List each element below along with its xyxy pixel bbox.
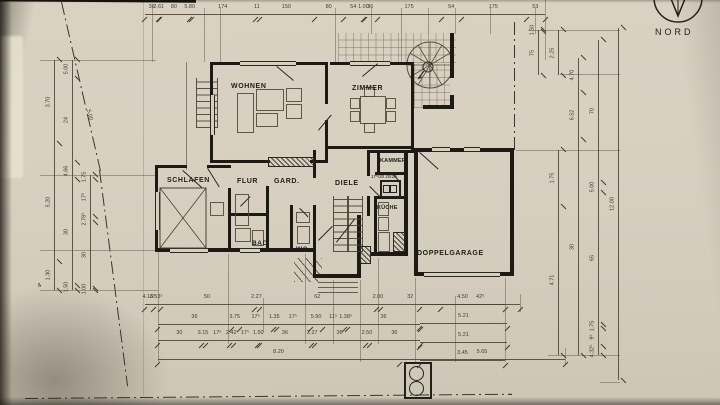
dim-label: 1.30 (46, 270, 52, 281)
dim-segment: 150 (259, 5, 314, 14)
room-label-gard: GARD. (274, 178, 300, 185)
dim-segment: 17⁵ (239, 315, 273, 324)
dim-chain-right-top-a: 1.5075 (528, 30, 539, 75)
dim-label: 9⁵ (590, 334, 596, 339)
room-label-garage: DOPPELGARAGE (417, 250, 484, 257)
door-swing (276, 66, 293, 81)
counter (378, 232, 390, 252)
dim-label: 36 (282, 331, 288, 337)
dim-segment: 65 (588, 192, 598, 324)
dim-label: 150 (282, 5, 291, 11)
box-cell (390, 185, 397, 193)
wardrobe (268, 157, 314, 167)
dim-label: 3.45 (457, 351, 468, 357)
chair (350, 111, 360, 122)
wall (325, 62, 328, 104)
dim-label: 53 (532, 5, 538, 11)
dim-label: 11⁵ (329, 315, 337, 321)
extension-line (220, 8, 221, 62)
dim-chain-left-outer: 3.705.201.30 (44, 60, 55, 290)
dim-segment: 17⁵ (276, 315, 310, 324)
garage-door (424, 272, 500, 277)
room-label-wc: WC (296, 246, 308, 253)
terrace-wall (450, 33, 454, 78)
dim-label: 4.71 (550, 275, 556, 286)
dim-segment: 30 (568, 139, 578, 355)
dim-segment: 70 (588, 40, 598, 182)
dim-segment: 80 (314, 5, 343, 14)
room-label-bad: BAD (252, 240, 268, 247)
table (256, 89, 284, 111)
bathtub (235, 194, 249, 226)
chair (386, 98, 396, 109)
dim-chain-bottom-3: 303.1517⁵2.4217⁵1.50362.27362.5036 (158, 331, 420, 341)
room-label-zimmer: ZIMMER (352, 85, 383, 92)
photo-shadow-bottom (0, 397, 720, 405)
window (240, 61, 296, 66)
dim-segment: 30 (62, 179, 72, 285)
dim-segment: 5.21 (420, 314, 507, 323)
dim-label: 80 (326, 5, 332, 11)
dim-label: 32 (407, 295, 413, 301)
dim-label-diagonal: 5.00 (85, 109, 93, 121)
dim-chain-top: 362.61805.801741115080541.00361755417553 (145, 5, 545, 15)
dim-label: 6.52 (570, 110, 576, 121)
armchair (286, 88, 302, 102)
dim-segment: 36 (364, 5, 377, 14)
sideboard (256, 113, 278, 127)
dim-segment: 53 (526, 5, 546, 14)
dim-label: 50 (204, 295, 210, 301)
dim-label: 2.25 (550, 47, 556, 58)
compass-label: NORD (655, 27, 694, 37)
shaft-circle (409, 381, 424, 396)
dim-segment: 75 (528, 31, 538, 75)
dim-segment: 12.00 (608, 28, 618, 380)
radiator (360, 246, 371, 264)
dim-segment: 2.25 (548, 30, 558, 75)
dim-chain-right-c: 705.00651.759⁵4.32⁵ (588, 40, 599, 355)
extension-line (600, 382, 620, 383)
dim-label: 80 (171, 5, 177, 11)
terrace-wall (450, 95, 454, 109)
dim-label: 17⁵ (241, 331, 249, 337)
dim-label: 70 (590, 108, 596, 114)
railing-line (186, 62, 187, 170)
wall (313, 205, 316, 277)
dim-segment: 30 (158, 331, 201, 340)
dim-label: 54 (350, 5, 356, 11)
room-label-schlafen: SCHLAFEN (167, 177, 210, 184)
wall (370, 252, 408, 256)
door-swing (318, 226, 333, 241)
dim-segment: 5.00 (62, 60, 72, 78)
dim-segment: 4.71 (548, 206, 558, 355)
sofa (237, 93, 254, 133)
table (360, 96, 386, 124)
dim-segment: 3.75 (231, 315, 239, 324)
dim-label: 36 (381, 315, 387, 321)
dim-chain-right-b: 4.706.5230 (568, 58, 579, 355)
room-label-kueche: KÜCHE (377, 205, 398, 211)
dim-segment: 1.75 (548, 150, 558, 206)
dim-label: 54 (448, 5, 454, 11)
dim-label: 30 (64, 229, 70, 235)
dim-label: 5.20 (46, 197, 52, 208)
sink (235, 228, 251, 242)
boundary-line-east (514, 22, 515, 152)
dim-segment: 24 (62, 78, 72, 163)
dim-label: 5.90 (311, 315, 322, 321)
dim-label: 17⁵ (213, 331, 221, 337)
room-label-diele: DIELE (335, 180, 359, 187)
dim-segment: 30 (80, 222, 90, 288)
interior-stair (333, 196, 348, 252)
wall (325, 120, 328, 163)
dim-label: 24 (64, 117, 70, 123)
dim-label: 30 (570, 244, 576, 250)
window (240, 248, 260, 253)
dim-label: 5.21 (458, 333, 469, 339)
wall (207, 165, 231, 168)
wall (328, 146, 414, 149)
dim-segment: 5.00 (588, 182, 598, 192)
wall (266, 186, 269, 216)
armchair (286, 104, 302, 119)
dim-segment: 50 (160, 295, 255, 304)
extension-line (40, 250, 158, 251)
dim-label: 17⁵ (82, 193, 88, 201)
window (464, 147, 480, 152)
dim-label: 5.00 (64, 63, 70, 74)
wall (155, 165, 187, 168)
extension-line (40, 60, 156, 61)
dim-chain-garage-3: 5.21 (420, 333, 507, 343)
window (350, 61, 390, 66)
dim-label: 5.21 (458, 314, 469, 320)
dim-label: 174 (218, 5, 227, 11)
dim-segment: 54 (441, 5, 461, 14)
dim-label: 4.70 (570, 70, 576, 81)
dim-segment: 4.66 (62, 162, 72, 178)
dim-label: 36 (391, 331, 397, 337)
dim-segment: 3.70 (44, 60, 54, 143)
dim-segment: 3.45 (420, 351, 505, 360)
nightstand (210, 202, 224, 216)
chair (350, 98, 360, 109)
wall (510, 148, 514, 276)
wall (290, 205, 293, 250)
dim-label: 3.70 (46, 96, 52, 107)
stove (393, 232, 405, 252)
wall (414, 272, 424, 276)
dim-segment: 4.32⁵ (588, 346, 598, 355)
wall (210, 160, 270, 163)
extension-line (335, 8, 336, 62)
dim-label: 8.20 (273, 350, 284, 356)
dim-segment: 36 (314, 331, 365, 340)
dim-segment: 5.90 (310, 315, 322, 324)
dim-label: 175 (489, 5, 498, 11)
dim-label: 17⁵ (252, 315, 260, 321)
room-label-kammer: KAMMER (380, 158, 406, 164)
chair (364, 123, 375, 133)
dim-segment: 6.52 (568, 92, 578, 139)
dim-label: 4.32⁵ (590, 344, 596, 357)
dim-label: 65 (590, 255, 596, 261)
extension-line (204, 8, 205, 62)
dim-segment: 4.70 (568, 58, 578, 92)
dim-label: 75 (530, 50, 536, 56)
dim-segment: 8.20 (158, 350, 399, 359)
dim-chain-garage-2: 5.21 (420, 314, 507, 324)
dim-chain-garage-4: 3.45 (420, 351, 505, 361)
dim-label: 4.50 (457, 295, 468, 301)
dim-segment: 5.20 (44, 143, 54, 260)
dim-segment: 36 (259, 331, 310, 340)
dim-segment: 62 (259, 295, 376, 304)
wall (367, 196, 370, 216)
dim-segment: 174 (191, 5, 255, 14)
room-label-flur: FLUR (237, 178, 258, 185)
dim-segment: 36 (369, 331, 420, 340)
dim-segment: 4.50 (420, 295, 505, 304)
dim-chain-left-mid: 5.00244.66301.50 (62, 60, 73, 290)
chair (386, 111, 396, 122)
extension-line (40, 175, 158, 176)
door-swing (419, 152, 438, 169)
dim-label: 62 (314, 295, 320, 301)
north-compass-icon (648, 0, 708, 26)
dim-label: 1.75 (550, 172, 556, 183)
exterior-steps-south (318, 279, 358, 293)
dim-segment: 5.21 (420, 333, 507, 342)
room-label-wohnen: WOHNEN (231, 83, 267, 90)
floorplan-photo: NORD WOHNEN ZIMMER SCHLAFEN FLUR GARD. D… (0, 0, 720, 405)
dim-chain-garage-1: 4.50 (420, 295, 505, 305)
wall (500, 272, 514, 276)
dim-label: 36 (191, 315, 197, 321)
dim-label: 36 (336, 331, 342, 337)
dim-segment: 175 (377, 5, 441, 14)
counter (378, 217, 389, 231)
dim-label: 17⁵ (289, 315, 297, 321)
window (432, 147, 450, 152)
dim-label: 4.66 (64, 165, 70, 176)
dim-label: 5.00 (590, 182, 596, 193)
sink (296, 212, 310, 223)
dim-label: 12.00 (610, 197, 616, 211)
dim-chain-bottom-2: 363.7517⁵1.3517⁵5.9011⁵1.38⁵36 (158, 315, 420, 325)
dim-segment: 175 (461, 5, 525, 14)
dim-segment: 36 (347, 315, 420, 324)
toilet (297, 226, 310, 244)
dim-segment: 17⁵ (80, 179, 90, 216)
box-cell (383, 185, 390, 193)
wall (411, 62, 414, 151)
dim-segment: 9⁵ (588, 328, 598, 346)
window (210, 95, 215, 135)
dim-label: 30 (82, 252, 88, 258)
bed (159, 187, 207, 249)
dim-label: 36 (367, 5, 373, 11)
dim-segment: 3.53⁵ (153, 295, 160, 304)
dim-chain-right-top-b: 2.25 (548, 30, 559, 75)
dim-label: 175 (404, 5, 413, 11)
dim-chain-right-d: 12.00 (608, 28, 619, 380)
dim-label: 30 (176, 331, 182, 337)
dim-chain-right-a: 1.754.71 (548, 150, 559, 355)
dim-chain-left-inner: 1.7517⁵2.78⁵301.00 (80, 175, 91, 290)
stair-note: 17⁵/30 20/20 (371, 174, 397, 179)
kammer-box (380, 180, 401, 198)
wall (228, 188, 231, 250)
wall (367, 150, 370, 176)
dim-segment: 36 (158, 315, 231, 324)
wall (313, 274, 361, 278)
